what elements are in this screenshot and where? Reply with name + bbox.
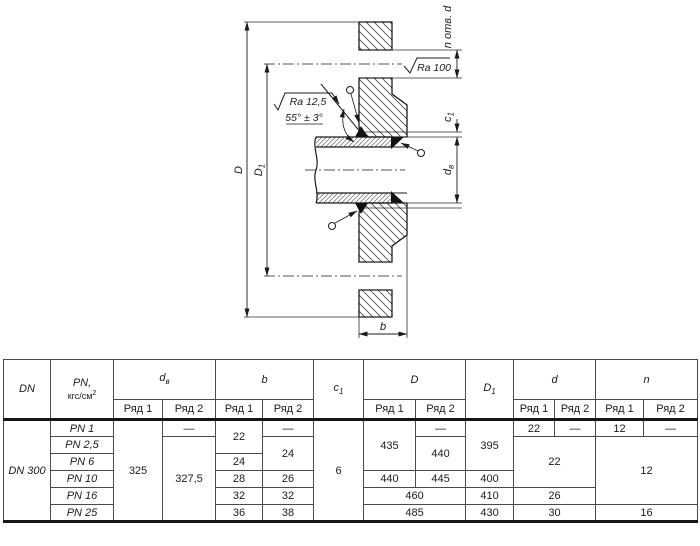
dim-dv-label: dв bbox=[442, 165, 456, 175]
cell-c1: 6 bbox=[314, 420, 364, 522]
col-header-pn: PN, кгс/см2 bbox=[51, 360, 114, 420]
dim-D-label: D bbox=[233, 166, 245, 174]
table-cell: — bbox=[416, 420, 466, 437]
weld-symbol-circle bbox=[347, 87, 354, 94]
table-cell: 12 bbox=[596, 420, 644, 437]
table-cell: 22 bbox=[514, 420, 555, 437]
table-cell: — bbox=[263, 420, 314, 437]
row-label: PN 1 bbox=[51, 420, 114, 437]
dimensions-table: DN PN, кгс/см2 dв b c1 D D1 d n Ряд 1 Ря… bbox=[3, 359, 698, 523]
table-cell: 430 bbox=[466, 505, 514, 522]
table-cell: 460 bbox=[364, 488, 466, 505]
weld-symbol-circle bbox=[418, 150, 425, 157]
weld-symbol-circle bbox=[329, 223, 336, 230]
subheader-ryad2: Ряд 2 bbox=[263, 400, 314, 420]
row-label: PN 25 bbox=[51, 505, 114, 522]
subheader-ryad1: Ряд 1 bbox=[596, 400, 644, 420]
col-header-D: D bbox=[364, 360, 466, 400]
standard-page: n отв. d Ra 100 Ra 12,5 55° ± 3° D D1 c1… bbox=[0, 0, 700, 546]
subheader-ryad1: Ряд 1 bbox=[514, 400, 555, 420]
table-cell: — bbox=[644, 420, 698, 437]
table-cell: 32 bbox=[263, 488, 314, 505]
holes-count-label: n отв. d bbox=[442, 5, 454, 48]
table-cell: — bbox=[555, 420, 596, 437]
table-cell: 445 bbox=[416, 471, 466, 488]
table-cell: 30 bbox=[514, 505, 596, 522]
row-label: PN 2,5 bbox=[51, 437, 114, 454]
cell-dn: DN 300 bbox=[4, 420, 51, 522]
table-cell: 24 bbox=[216, 454, 263, 471]
subheader-ryad2: Ряд 2 bbox=[555, 400, 596, 420]
col-header-D1: D1 bbox=[466, 360, 514, 420]
table-cell: 24 bbox=[263, 437, 314, 471]
table-cell: 440 bbox=[364, 471, 416, 488]
table-cell: 435 bbox=[364, 420, 416, 471]
col-header-d: d bbox=[514, 360, 596, 400]
dim-D1-label: D1 bbox=[253, 164, 267, 176]
table-cell: 36 bbox=[216, 505, 263, 522]
subheader-ryad2: Ряд 2 bbox=[163, 400, 216, 420]
subheader-ryad1: Ряд 1 bbox=[364, 400, 416, 420]
flange-drawing: n отв. d Ra 100 Ra 12,5 55° ± 3° D D1 c1… bbox=[0, 0, 700, 359]
ra125-label: Ra 12,5 bbox=[290, 96, 327, 108]
cell-dv1: 325 bbox=[114, 420, 163, 522]
subheader-ryad2: Ряд 2 bbox=[416, 400, 466, 420]
dim-b-label: b bbox=[380, 321, 386, 333]
bevel-angle-label: 55° ± 3° bbox=[285, 112, 323, 124]
flange-section bbox=[359, 22, 407, 317]
table-cell: 26 bbox=[263, 471, 314, 488]
col-header-dn: DN bbox=[4, 360, 51, 420]
dim-c1-label: c1 bbox=[442, 112, 456, 122]
table-cell: 38 bbox=[263, 505, 314, 522]
table-cell: — bbox=[163, 420, 216, 437]
table-cell: 16 bbox=[596, 505, 698, 522]
table-cell: 26 bbox=[514, 488, 596, 505]
col-header-dv: dв bbox=[114, 360, 216, 400]
row-label: PN 16 bbox=[51, 488, 114, 505]
row-label: PN 10 bbox=[51, 471, 114, 488]
table-cell: 410 bbox=[466, 488, 514, 505]
table-cell: 327,5 bbox=[163, 437, 216, 522]
subheader-ryad2: Ряд 2 bbox=[644, 400, 698, 420]
table-cell: 400 bbox=[466, 471, 514, 488]
col-header-b: b bbox=[216, 360, 314, 400]
subheader-ryad1: Ряд 1 bbox=[216, 400, 263, 420]
ra100-label: Ra 100 bbox=[417, 62, 451, 74]
table-row-pn1: DN 300 PN 1 325 — 22 — 6 435 — 395 22 — … bbox=[4, 420, 698, 437]
subheader-ryad1: Ряд 1 bbox=[114, 400, 163, 420]
table-cell: 12 bbox=[596, 437, 698, 505]
table-cell: 395 bbox=[466, 420, 514, 471]
table-cell: 440 bbox=[416, 437, 466, 471]
row-label: PN 6 bbox=[51, 454, 114, 471]
table-cell: 32 bbox=[216, 488, 263, 505]
col-header-n: n bbox=[596, 360, 698, 400]
table-cell: 22 bbox=[514, 437, 596, 488]
table-cell: 485 bbox=[364, 505, 466, 522]
table-cell: 22 bbox=[216, 420, 263, 454]
col-header-c1: c1 bbox=[314, 360, 364, 420]
table-cell: 28 bbox=[216, 471, 263, 488]
drawing-labels: n отв. d Ra 100 Ra 12,5 55° ± 3° D D1 c1… bbox=[233, 5, 456, 333]
